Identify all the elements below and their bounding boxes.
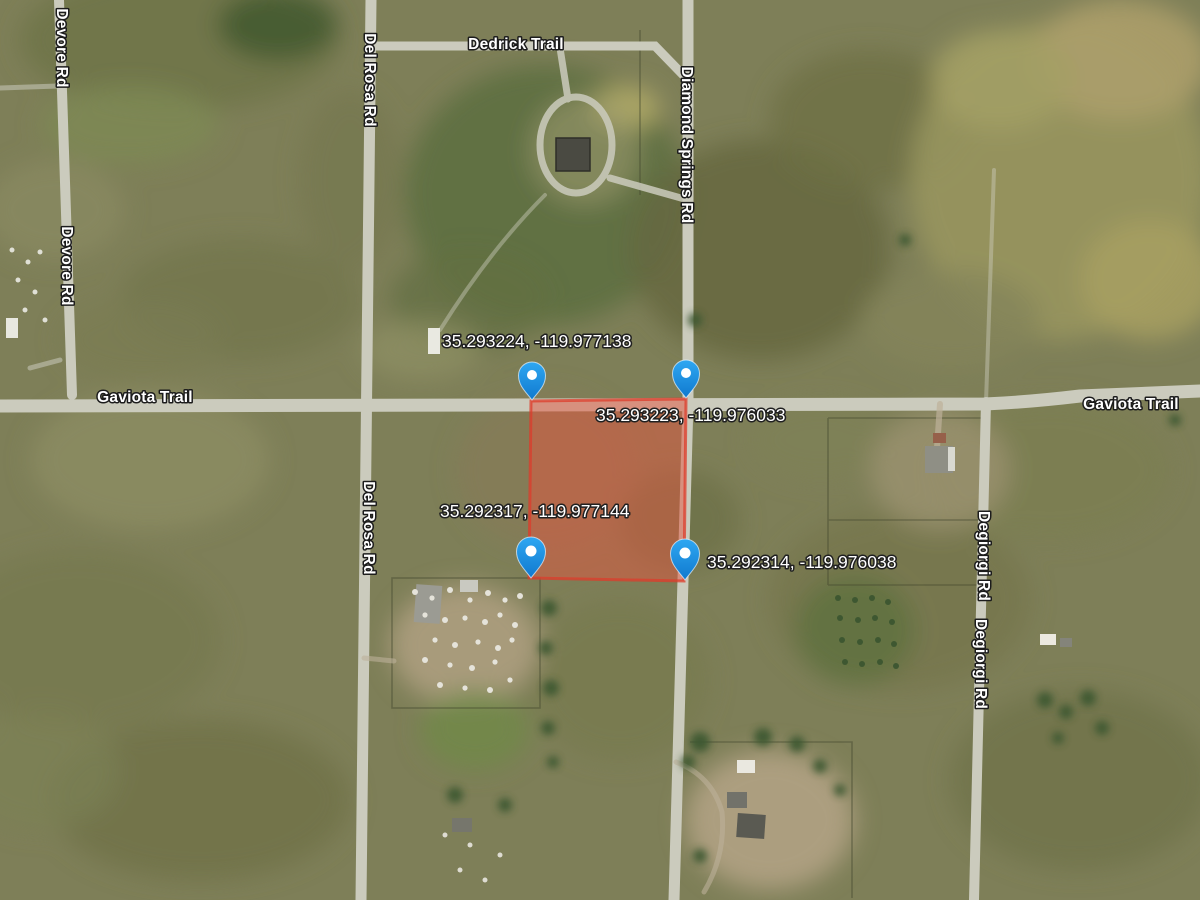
label-degiorgi-rd-1: Degiorgi Rd	[975, 511, 992, 601]
coordinate-label-southeast: 35.292314, -119.976038	[707, 552, 896, 572]
label-diamond-springs-rd: Diamond Springs Rd	[678, 67, 695, 224]
label-gaviota-trail-west: Gaviota Trail	[97, 389, 193, 406]
coordinate-label-northeast: 35.293223, -119.976033	[596, 405, 785, 425]
label-del-rosa-rd-1: Del Rosa Rd	[361, 33, 378, 127]
coordinate-label-northwest: 35.293224, -119.977138	[442, 331, 631, 351]
coordinate-label-southwest: 35.292317, -119.977144	[440, 501, 630, 521]
label-del-rosa-rd-2: Del Rosa Rd	[360, 481, 377, 575]
label-devore-rd-1: Devore Rd	[53, 8, 70, 87]
label-gaviota-trail-east: Gaviota Trail	[1083, 396, 1179, 413]
label-devore-rd-2: Devore Rd	[58, 226, 75, 305]
satellite-map[interactable]: Dedrick Trail Devore Rd Devore Rd Del Ro…	[0, 0, 1200, 900]
label-degiorgi-rd-2: Degiorgi Rd	[972, 619, 989, 709]
label-dedrick-trail: Dedrick Trail	[468, 36, 564, 53]
parcel-highlight[interactable]	[529, 399, 686, 581]
